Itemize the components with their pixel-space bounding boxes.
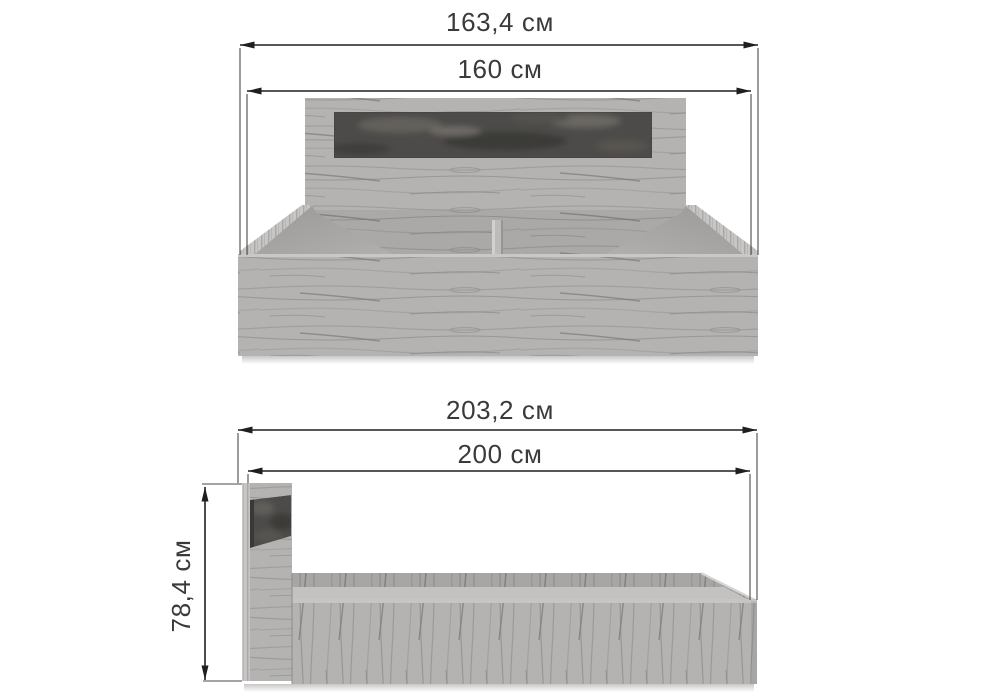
side-headboard-edge xyxy=(242,483,250,681)
bed-side-view xyxy=(242,483,757,692)
side-mattress-platform xyxy=(292,587,747,599)
front-center-divider xyxy=(492,220,503,257)
front-panel-top-edge xyxy=(238,254,758,257)
front-panel xyxy=(238,257,758,356)
side-view-shadow xyxy=(244,684,754,692)
front-view-shadow xyxy=(242,356,754,364)
side-outer-length-label: 203,2 см xyxy=(350,396,650,426)
bed-front-view xyxy=(238,98,758,364)
side-panel-top-edge xyxy=(292,599,757,603)
side-inner-length-label: 200 см xyxy=(350,440,650,470)
front-outer-width-label: 163,4 см xyxy=(350,8,650,38)
side-foot-corner-shade xyxy=(751,601,757,684)
side-panel xyxy=(292,603,757,684)
front-inner-width-label: 160 см xyxy=(350,55,650,85)
bed-dimension-diagram: 163,4 см 160 см 203,2 см 200 см 78,4 см xyxy=(0,0,1000,700)
front-headboard-accent-insert xyxy=(330,112,652,158)
bed-illustration-svg xyxy=(0,0,1000,700)
side-height-label: 78,4 см xyxy=(167,513,199,659)
